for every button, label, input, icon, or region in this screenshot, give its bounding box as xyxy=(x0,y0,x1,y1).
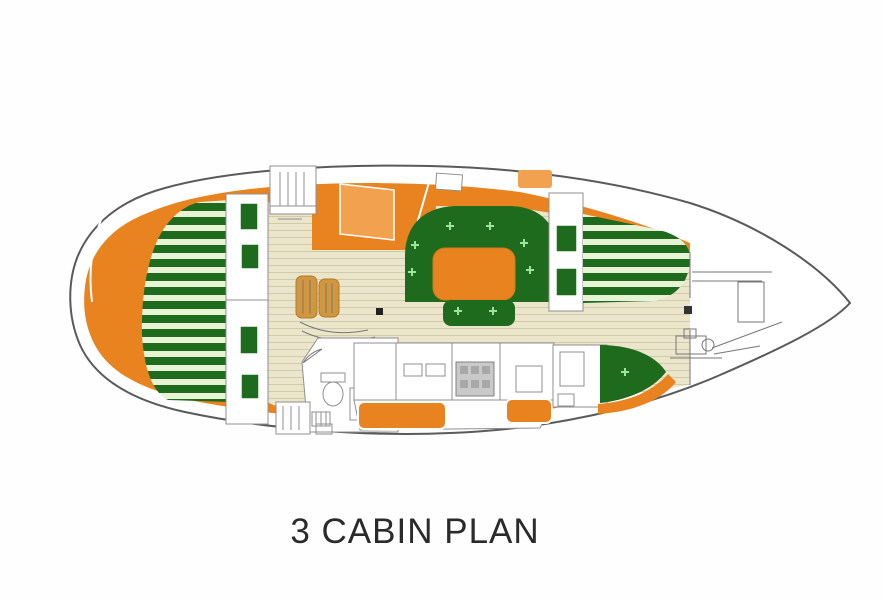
chart-table xyxy=(340,184,394,240)
deck-hatch xyxy=(518,170,552,188)
galley-cabinet xyxy=(358,402,446,429)
wardrobe-door xyxy=(241,374,259,399)
wardrobe-door xyxy=(556,225,577,252)
stove xyxy=(456,362,494,396)
wardrobe-door xyxy=(241,244,259,269)
galley-cabinet xyxy=(506,399,552,423)
plan-caption: 3 CABIN PLAN xyxy=(210,512,620,552)
salon-bench xyxy=(443,300,515,326)
wardrobe-door xyxy=(240,326,258,354)
companionway-steps xyxy=(270,166,316,219)
mast-post xyxy=(376,308,383,315)
deck-fitting xyxy=(684,306,692,314)
aft-wardrobes xyxy=(226,194,268,424)
wardrobe-door xyxy=(240,203,258,230)
wardrobe-door xyxy=(556,268,577,296)
galley xyxy=(354,343,554,430)
deck-hatch xyxy=(435,173,462,191)
salon-table xyxy=(433,248,515,300)
galley-counter xyxy=(354,343,554,400)
forward-cabin-passage xyxy=(553,345,607,407)
yacht-3-cabin-floor-plan: 3 CABIN PLAN xyxy=(0,0,884,600)
stair-landing xyxy=(296,276,339,318)
boat-plan-drawing xyxy=(0,0,884,600)
